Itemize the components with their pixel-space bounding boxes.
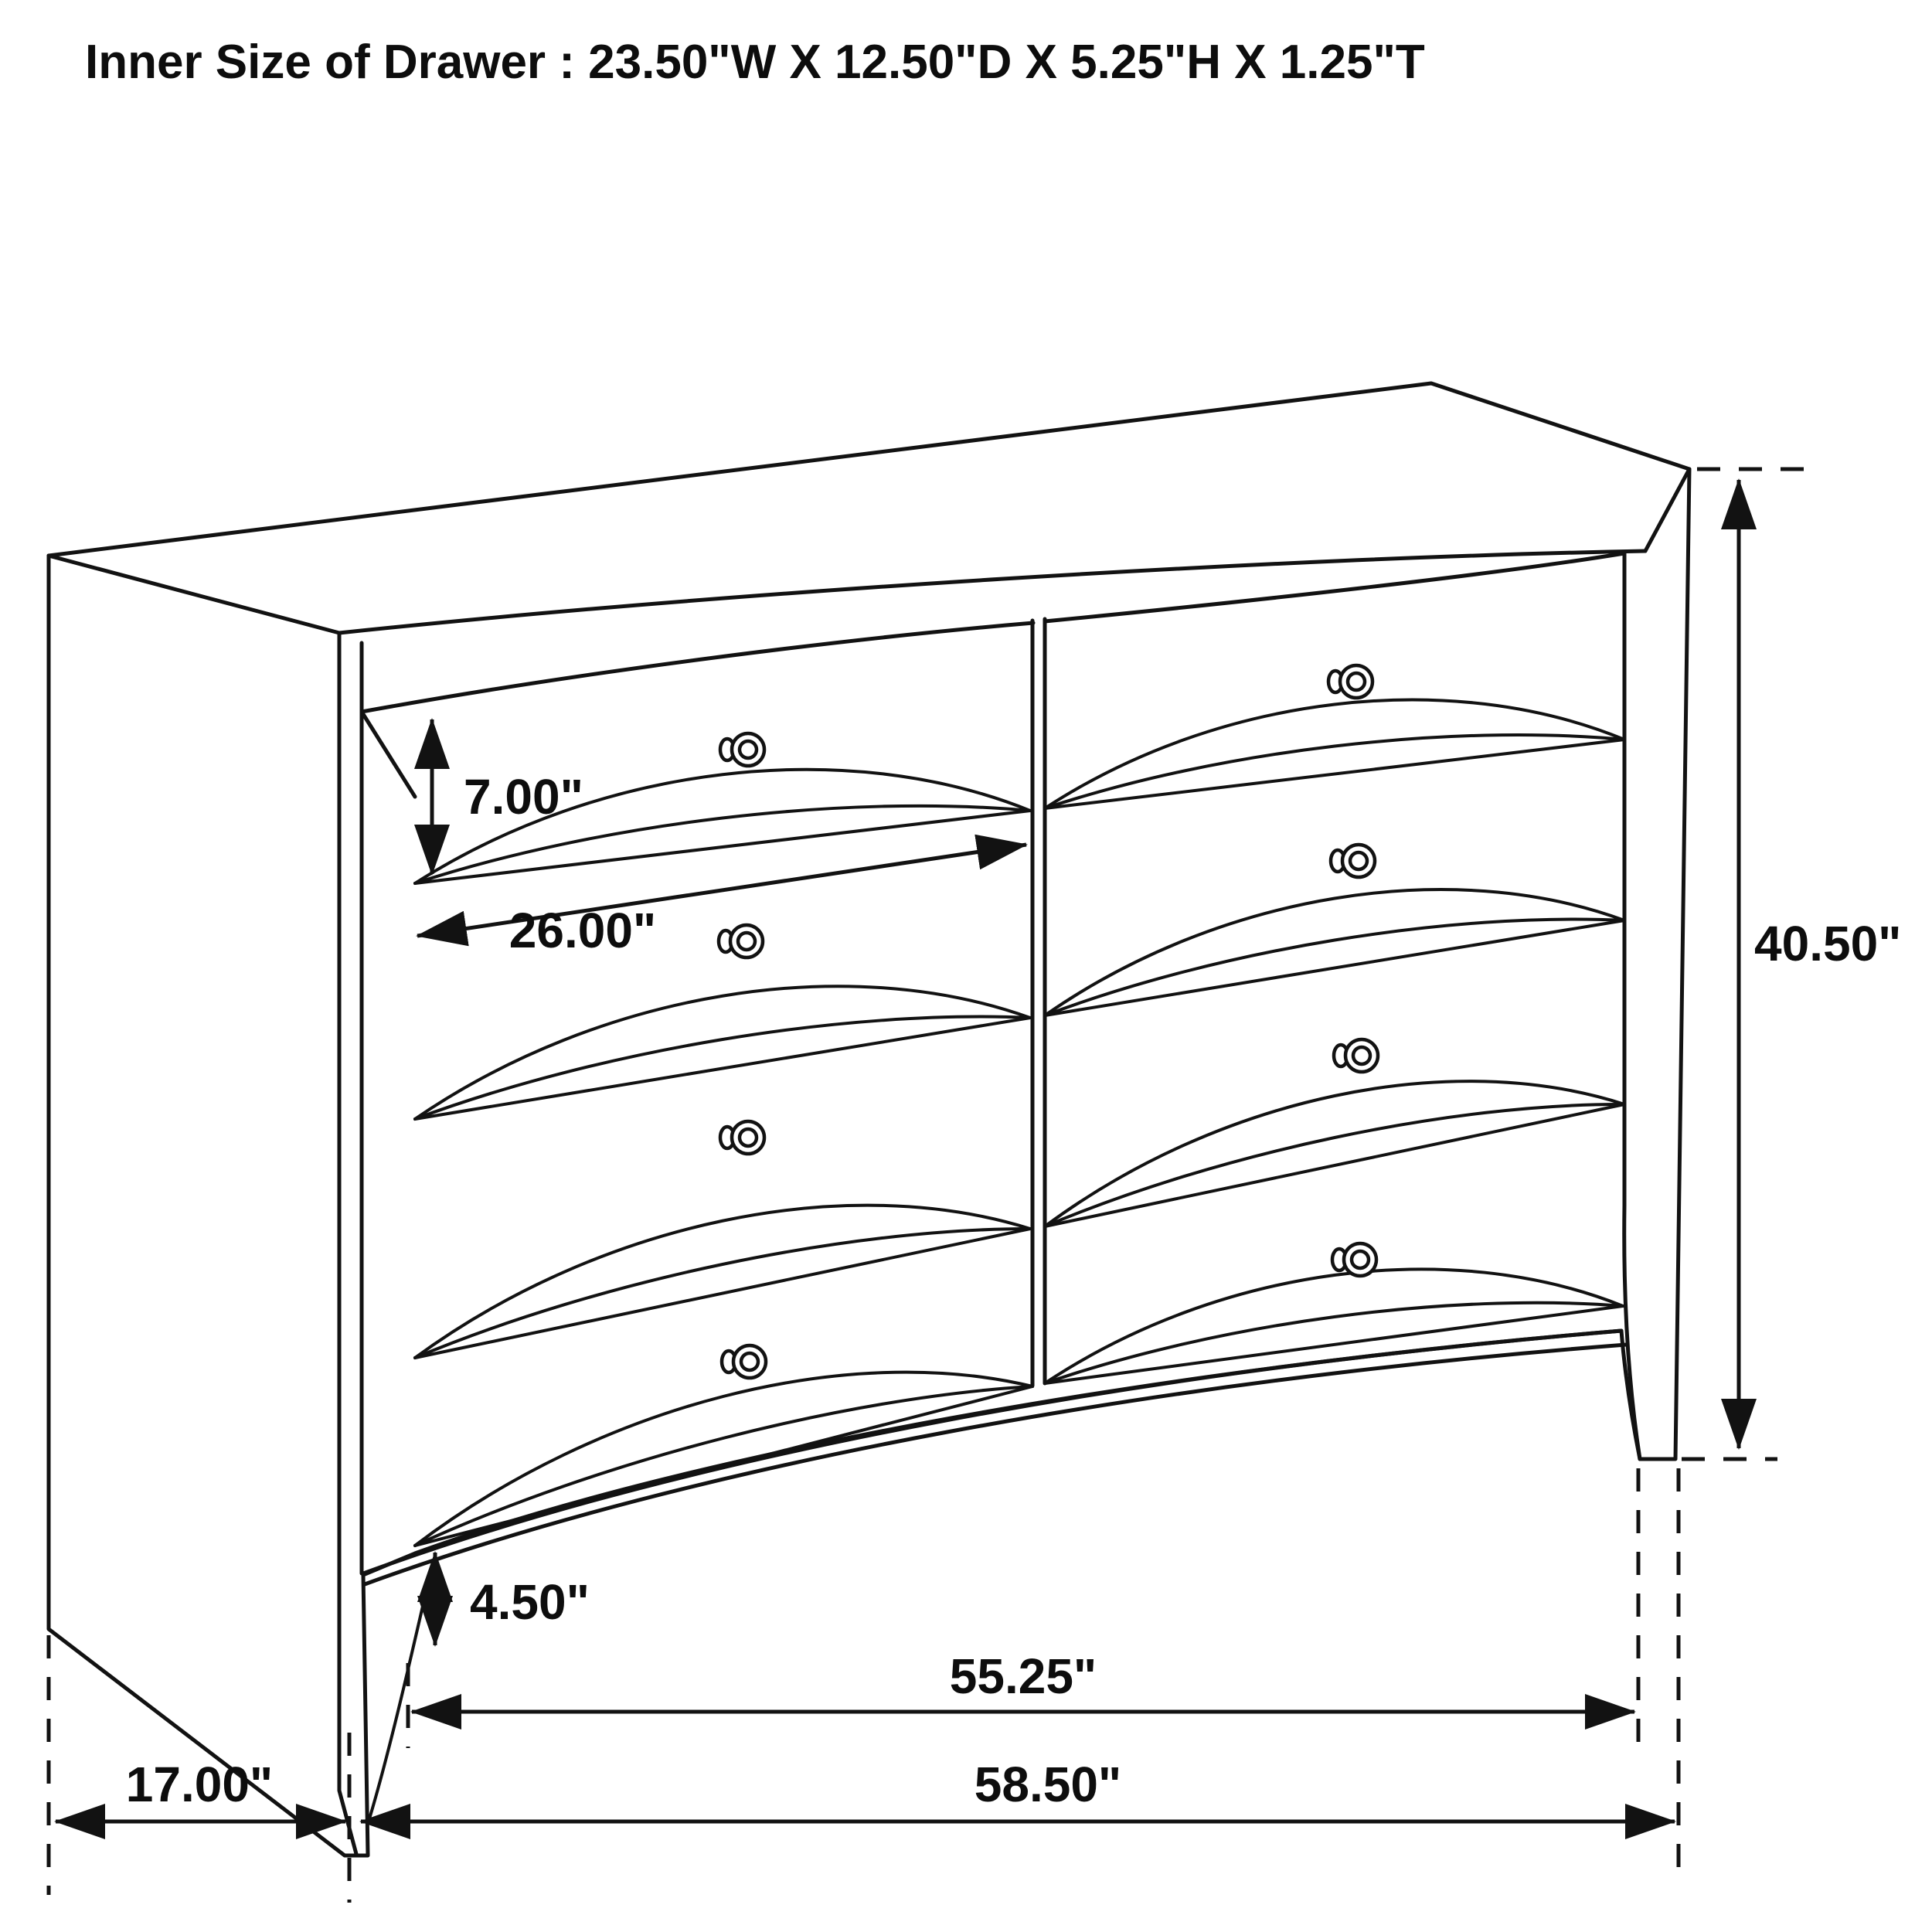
dim-label-7in: 7.00" xyxy=(464,769,583,825)
diagram-canvas: Inner Size of Drawer : 23.50"W X 12.50"D… xyxy=(0,0,1932,1932)
drawer-knob xyxy=(1328,665,1372,698)
dim-label-26in: 26.00" xyxy=(509,903,657,958)
drawer-knob xyxy=(720,733,764,766)
drawer-knob xyxy=(1334,1039,1378,1072)
drawer-knob xyxy=(722,1345,766,1378)
dim-label-4050in: 40.50" xyxy=(1754,916,1902,971)
drawer-knob xyxy=(720,1121,764,1154)
page-title: Inner Size of Drawer : 23.50"W X 12.50"D… xyxy=(85,36,1425,89)
drawer-knob xyxy=(1332,1243,1376,1276)
dim-label-5525in: 55.25" xyxy=(950,1648,1097,1704)
drawer-knob xyxy=(719,925,763,957)
dim-label-1700in: 17.00" xyxy=(126,1757,274,1812)
dim-label-5850in: 58.50" xyxy=(975,1757,1122,1812)
dim-label-450in: 4.50" xyxy=(470,1574,590,1630)
drawer-knob xyxy=(1331,845,1375,877)
